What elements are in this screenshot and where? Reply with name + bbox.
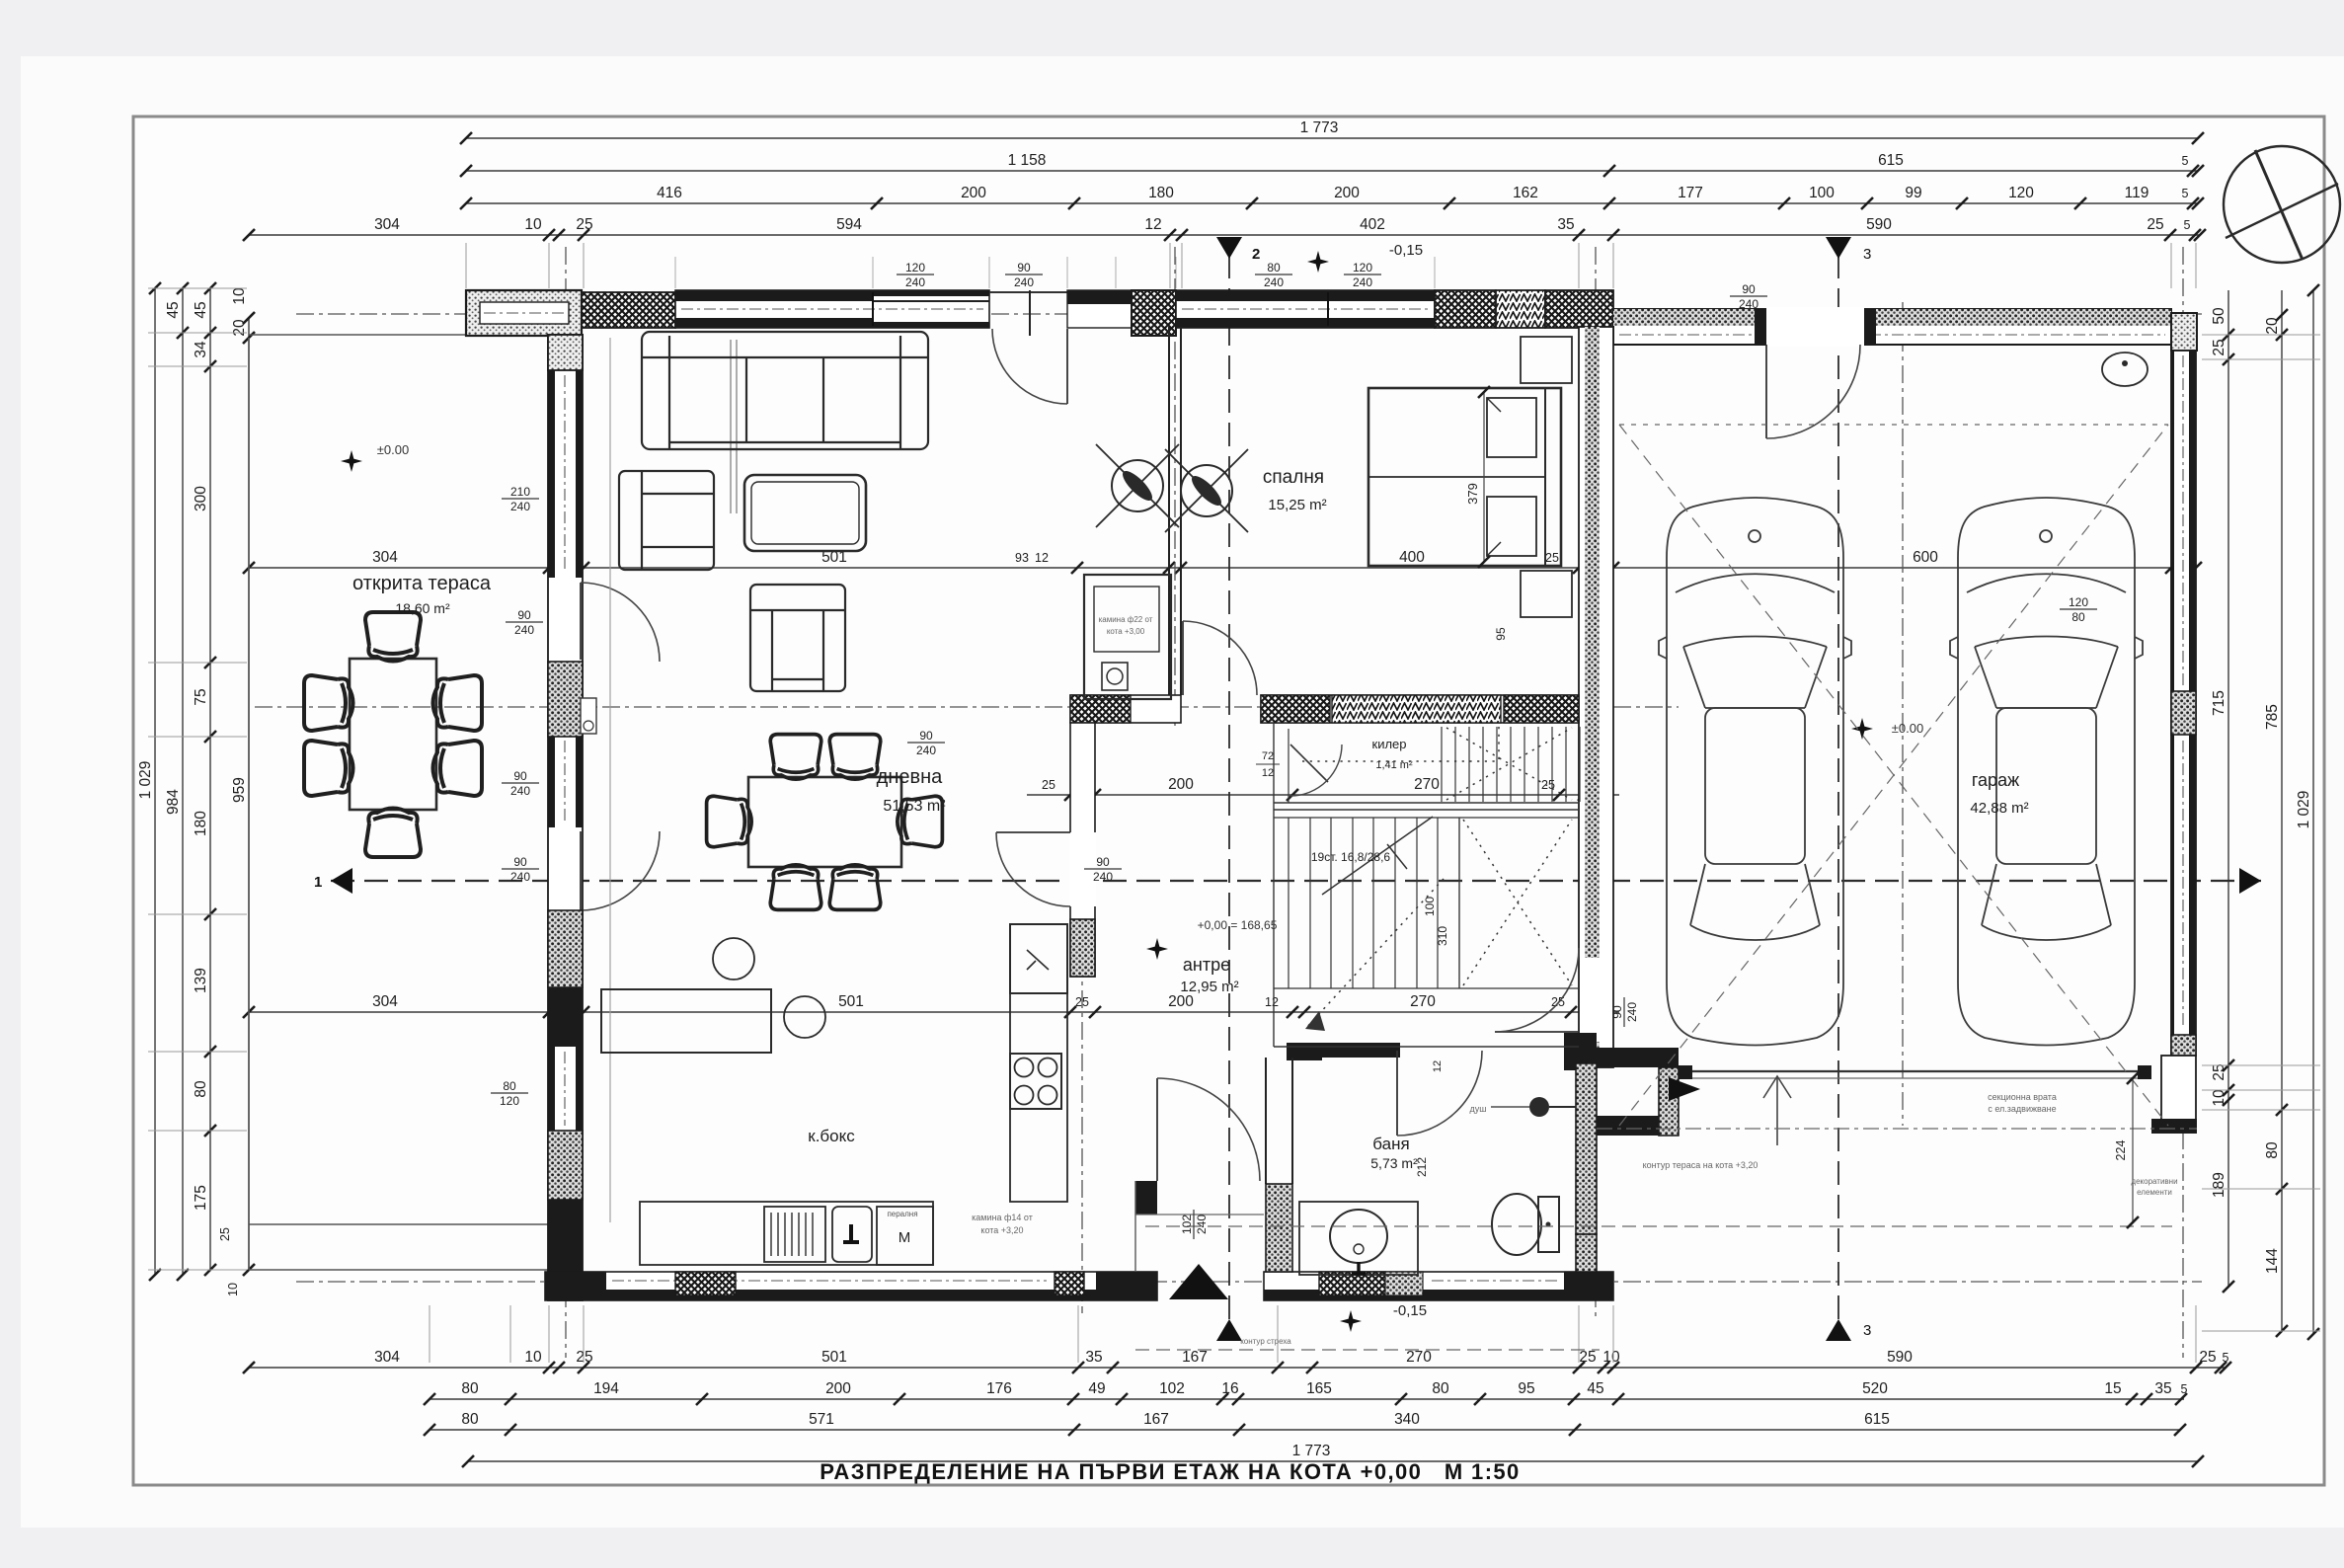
svg-text:25: 25 xyxy=(2211,339,2227,355)
svg-text:224: 224 xyxy=(2114,1140,2128,1161)
svg-text:180: 180 xyxy=(1148,185,1174,201)
svg-text:18,60 m²: 18,60 m² xyxy=(395,600,450,616)
svg-text:25: 25 xyxy=(2211,1063,2227,1080)
svg-text:5: 5 xyxy=(2181,1382,2188,1396)
svg-text:12: 12 xyxy=(1035,551,1049,565)
svg-text:3: 3 xyxy=(1863,246,1871,263)
svg-text:51,53 m²: 51,53 m² xyxy=(883,798,946,815)
svg-text:95: 95 xyxy=(1518,1380,1534,1397)
svg-text:спалня: спалня xyxy=(1263,467,1324,488)
svg-text:12: 12 xyxy=(1432,1060,1444,1072)
svg-text:2: 2 xyxy=(1252,246,1260,263)
svg-text:25: 25 xyxy=(1579,1349,1596,1366)
svg-text:10: 10 xyxy=(2211,1089,2227,1107)
svg-text:15: 15 xyxy=(2104,1380,2121,1397)
svg-text:10: 10 xyxy=(524,1349,542,1366)
svg-text:162: 162 xyxy=(1513,185,1538,201)
svg-text:45: 45 xyxy=(193,301,209,318)
svg-text:102: 102 xyxy=(1159,1380,1185,1397)
svg-text:5: 5 xyxy=(2184,218,2191,232)
svg-text:400: 400 xyxy=(1399,549,1425,566)
svg-text:1: 1 xyxy=(314,874,322,891)
svg-text:10: 10 xyxy=(524,216,542,233)
svg-text:+0,00 = 168,65: +0,00 = 168,65 xyxy=(1198,918,1278,932)
svg-text:240: 240 xyxy=(1739,297,1758,311)
svg-text:300: 300 xyxy=(193,486,209,511)
svg-text:±0.00: ±0.00 xyxy=(377,442,409,457)
svg-text:240: 240 xyxy=(1014,275,1034,289)
svg-text:379: 379 xyxy=(1465,483,1480,505)
svg-text:антре: антре xyxy=(1183,955,1230,975)
svg-text:90: 90 xyxy=(513,769,527,783)
svg-text:1,41 m²: 1,41 m² xyxy=(1375,759,1413,771)
svg-text:42,88 m²: 42,88 m² xyxy=(1970,800,2028,817)
svg-text:75: 75 xyxy=(193,688,209,705)
svg-text:10: 10 xyxy=(226,1283,240,1296)
svg-text:240: 240 xyxy=(1353,275,1372,289)
svg-text:25: 25 xyxy=(1042,778,1055,792)
svg-text:240: 240 xyxy=(510,500,530,513)
svg-text:1 158: 1 158 xyxy=(1008,152,1047,169)
svg-text:кота +3,00: кота +3,00 xyxy=(1107,627,1145,636)
svg-text:5: 5 xyxy=(2182,187,2189,200)
svg-text:килер: килер xyxy=(1372,737,1407,751)
svg-text:80: 80 xyxy=(503,1079,516,1093)
svg-text:35: 35 xyxy=(1085,1349,1102,1366)
svg-text:984: 984 xyxy=(165,789,182,815)
svg-text:90: 90 xyxy=(1017,261,1031,274)
svg-text:210: 210 xyxy=(510,485,530,499)
svg-text:секционна врата: секционна врата xyxy=(1988,1092,2057,1102)
svg-text:304: 304 xyxy=(372,993,398,1010)
svg-text:80: 80 xyxy=(2264,1141,2281,1159)
svg-text:90: 90 xyxy=(1610,1005,1624,1019)
svg-text:1 029: 1 029 xyxy=(137,761,154,800)
svg-text:402: 402 xyxy=(1360,216,1385,233)
svg-text:49: 49 xyxy=(1088,1380,1105,1397)
svg-text:елементи: елементи xyxy=(2137,1188,2172,1197)
svg-text:310: 310 xyxy=(1436,926,1449,946)
svg-text:80: 80 xyxy=(193,1080,209,1098)
svg-text:501: 501 xyxy=(838,993,864,1010)
svg-text:120: 120 xyxy=(1353,261,1372,274)
svg-text:240: 240 xyxy=(1264,275,1284,289)
svg-text:212: 212 xyxy=(1415,1157,1429,1177)
svg-text:20: 20 xyxy=(2264,317,2281,335)
svg-text:баня: баня xyxy=(1372,1135,1409,1153)
svg-text:90: 90 xyxy=(517,608,531,622)
svg-text:270: 270 xyxy=(1410,993,1436,1010)
svg-text:12,95 m²: 12,95 m² xyxy=(1180,979,1238,995)
svg-text:165: 165 xyxy=(1306,1380,1332,1397)
svg-text:25: 25 xyxy=(2147,216,2163,233)
svg-text:50: 50 xyxy=(2211,307,2227,325)
svg-text:1 773: 1 773 xyxy=(1300,119,1339,136)
svg-text:175: 175 xyxy=(193,1185,209,1211)
svg-text:240: 240 xyxy=(916,744,936,757)
svg-text:144: 144 xyxy=(2264,1248,2281,1274)
svg-text:200: 200 xyxy=(1168,776,1194,793)
svg-text:25: 25 xyxy=(576,1349,592,1366)
svg-text:600: 600 xyxy=(1913,549,1938,566)
svg-text:90: 90 xyxy=(1742,282,1756,296)
svg-text:10: 10 xyxy=(1602,1349,1620,1366)
svg-text:139: 139 xyxy=(193,968,209,993)
svg-text:100: 100 xyxy=(1809,185,1835,201)
svg-text:5: 5 xyxy=(2182,154,2189,168)
svg-text:пералня: пералня xyxy=(887,1210,917,1218)
svg-text:12: 12 xyxy=(1265,995,1279,1009)
svg-text:-0,15: -0,15 xyxy=(1389,242,1423,259)
svg-text:270: 270 xyxy=(1406,1349,1432,1366)
svg-text:80: 80 xyxy=(1267,261,1281,274)
svg-text:-0,15: -0,15 xyxy=(1393,1302,1427,1319)
svg-text:5,73 m²: 5,73 m² xyxy=(1370,1155,1418,1171)
svg-text:3: 3 xyxy=(1863,1322,1871,1339)
svg-text:200: 200 xyxy=(825,1380,851,1397)
svg-text:камина ф14 от: камина ф14 от xyxy=(972,1213,1033,1222)
svg-text:гараж: гараж xyxy=(1972,770,2019,790)
svg-text:25: 25 xyxy=(576,216,592,233)
svg-text:304: 304 xyxy=(374,216,400,233)
svg-text:120: 120 xyxy=(905,261,925,274)
svg-text:контур тераса на кота +3,20: контур тераса на кота +3,20 xyxy=(1643,1160,1758,1170)
svg-text:20: 20 xyxy=(231,319,248,337)
svg-text:90: 90 xyxy=(919,729,933,743)
svg-text:90: 90 xyxy=(1096,855,1110,869)
svg-text:959: 959 xyxy=(231,777,248,803)
svg-text:45: 45 xyxy=(1587,1380,1603,1397)
svg-text:594: 594 xyxy=(836,216,862,233)
svg-text:25: 25 xyxy=(1545,551,1559,565)
svg-text:520: 520 xyxy=(1862,1380,1888,1397)
svg-text:240: 240 xyxy=(510,784,530,798)
svg-text:416: 416 xyxy=(657,185,682,201)
svg-text:5: 5 xyxy=(2223,1351,2229,1365)
svg-text:34: 34 xyxy=(193,341,209,358)
svg-text:80: 80 xyxy=(461,1380,479,1397)
svg-text:12: 12 xyxy=(1262,767,1274,779)
svg-text:120: 120 xyxy=(2008,185,2034,201)
svg-text:±0.00: ±0.00 xyxy=(1892,721,1923,736)
svg-text:785: 785 xyxy=(2264,704,2281,730)
svg-text:120: 120 xyxy=(2069,595,2088,609)
svg-text:501: 501 xyxy=(821,1349,847,1366)
svg-text:90: 90 xyxy=(513,855,527,869)
svg-text:240: 240 xyxy=(510,870,530,884)
svg-text:200: 200 xyxy=(1168,993,1194,1010)
svg-text:16: 16 xyxy=(1221,1380,1238,1397)
svg-text:590: 590 xyxy=(1887,1349,1913,1366)
svg-text:99: 99 xyxy=(1905,185,1921,201)
svg-text:35: 35 xyxy=(2154,1380,2171,1397)
svg-text:25: 25 xyxy=(2199,1349,2216,1366)
svg-text:240: 240 xyxy=(514,623,534,637)
svg-text:1 029: 1 029 xyxy=(2296,791,2312,829)
svg-text:590: 590 xyxy=(1866,216,1892,233)
svg-text:М: М xyxy=(899,1229,911,1246)
svg-text:10: 10 xyxy=(231,287,248,305)
svg-text:к.бокс: к.бокс xyxy=(808,1127,855,1145)
svg-text:167: 167 xyxy=(1182,1349,1208,1366)
svg-text:контур стреха: контур стреха xyxy=(1240,1337,1291,1346)
svg-text:декоративни: декоративни xyxy=(2131,1177,2177,1186)
svg-text:270: 270 xyxy=(1414,776,1440,793)
svg-text:304: 304 xyxy=(372,549,398,566)
svg-text:240: 240 xyxy=(905,275,925,289)
svg-text:80: 80 xyxy=(461,1411,479,1428)
svg-text:180: 180 xyxy=(193,811,209,836)
svg-text:45: 45 xyxy=(165,301,182,318)
svg-text:камина ф22 от: камина ф22 от xyxy=(1099,615,1153,624)
svg-text:200: 200 xyxy=(1334,185,1360,201)
svg-text:72: 72 xyxy=(1262,750,1274,762)
svg-text:80: 80 xyxy=(1432,1380,1449,1397)
svg-text:35: 35 xyxy=(1557,216,1574,233)
svg-text:119: 119 xyxy=(2125,185,2149,201)
svg-text:102: 102 xyxy=(1180,1215,1194,1234)
svg-text:240: 240 xyxy=(1093,870,1113,884)
svg-text:615: 615 xyxy=(1878,152,1904,169)
svg-text:240: 240 xyxy=(1195,1215,1209,1234)
svg-text:душ: душ xyxy=(1470,1104,1487,1114)
svg-text:12: 12 xyxy=(1144,216,1161,233)
svg-text:120: 120 xyxy=(500,1094,519,1108)
svg-text:100: 100 xyxy=(1423,897,1437,916)
svg-text:340: 340 xyxy=(1394,1411,1420,1428)
svg-text:дневна: дневна xyxy=(877,766,944,788)
svg-text:715: 715 xyxy=(2211,690,2227,716)
svg-text:167: 167 xyxy=(1143,1411,1169,1428)
svg-text:240: 240 xyxy=(1625,1002,1639,1022)
svg-text:177: 177 xyxy=(1678,185,1703,201)
svg-text:189: 189 xyxy=(2211,1172,2227,1198)
svg-text:25: 25 xyxy=(1541,778,1555,792)
svg-text:кота +3,20: кота +3,20 xyxy=(980,1225,1023,1235)
svg-text:19ст. 16,8/28,6: 19ст. 16,8/28,6 xyxy=(1311,850,1391,864)
svg-text:25: 25 xyxy=(218,1227,232,1241)
svg-text:открита тераса: открита тераса xyxy=(352,573,492,594)
svg-text:304: 304 xyxy=(374,1349,400,1366)
svg-text:15,25 m²: 15,25 m² xyxy=(1268,497,1326,513)
svg-text:1 773: 1 773 xyxy=(1292,1443,1331,1459)
svg-text:80: 80 xyxy=(2071,610,2085,624)
svg-text:93: 93 xyxy=(1015,551,1029,565)
svg-text:95: 95 xyxy=(1494,627,1508,641)
svg-text:194: 194 xyxy=(593,1380,619,1397)
svg-text:200: 200 xyxy=(961,185,986,201)
svg-text:176: 176 xyxy=(986,1380,1012,1397)
svg-text:615: 615 xyxy=(1864,1411,1890,1428)
svg-text:с ел.задвижване: с ел.задвижване xyxy=(1988,1104,2056,1114)
svg-text:571: 571 xyxy=(809,1411,834,1428)
svg-text:РАЗПРЕДЕЛЕНИЕ НА ПЪРВИ ЕТАЖ НА: РАЗПРЕДЕЛЕНИЕ НА ПЪРВИ ЕТАЖ НА КОТА +0,0… xyxy=(820,1459,1520,1484)
